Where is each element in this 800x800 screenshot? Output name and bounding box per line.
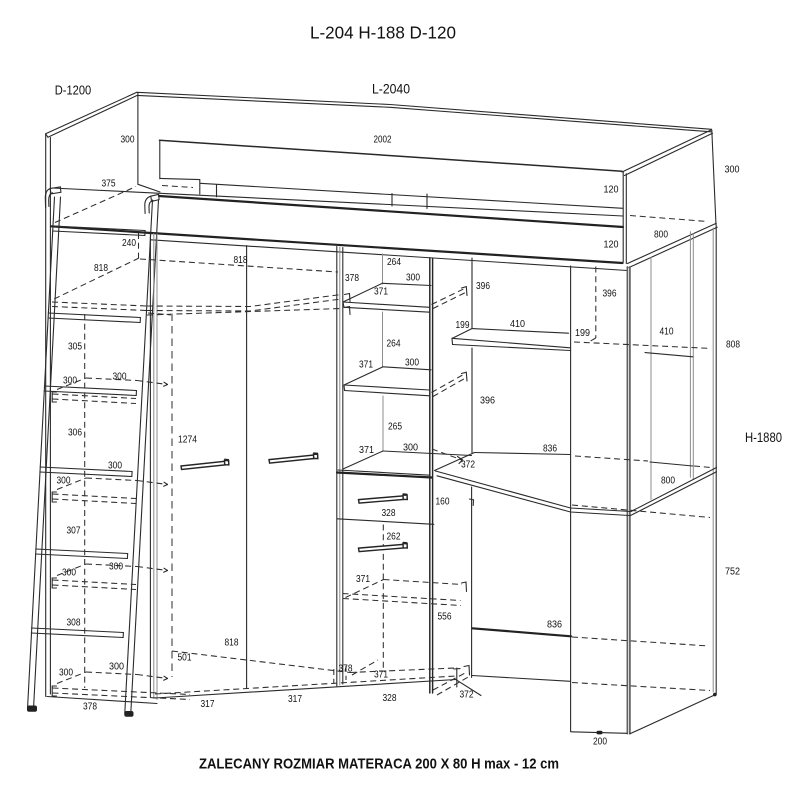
svg-text:396: 396 xyxy=(476,281,490,292)
svg-text:300: 300 xyxy=(403,443,418,454)
svg-text:556: 556 xyxy=(438,612,452,623)
svg-text:264: 264 xyxy=(387,339,401,350)
svg-text:300: 300 xyxy=(405,358,419,369)
svg-text:H-1880: H-1880 xyxy=(745,429,782,445)
svg-text:410: 410 xyxy=(660,327,674,338)
svg-text:752: 752 xyxy=(725,567,740,578)
svg-text:378: 378 xyxy=(339,664,353,675)
svg-text:371: 371 xyxy=(374,287,388,298)
svg-text:199: 199 xyxy=(456,320,470,331)
svg-text:300: 300 xyxy=(59,668,73,679)
svg-text:300: 300 xyxy=(406,273,420,284)
svg-text:300: 300 xyxy=(109,562,123,573)
svg-text:317: 317 xyxy=(201,699,215,710)
svg-text:818: 818 xyxy=(234,255,248,266)
svg-text:306: 306 xyxy=(68,428,82,439)
svg-text:501: 501 xyxy=(178,653,192,664)
svg-text:300: 300 xyxy=(109,662,124,673)
svg-text:D-1200: D-1200 xyxy=(55,84,92,98)
svg-text:371: 371 xyxy=(359,445,374,456)
svg-text:371: 371 xyxy=(374,670,388,681)
svg-text:305: 305 xyxy=(68,342,82,353)
svg-text:300: 300 xyxy=(725,165,740,176)
svg-text:818: 818 xyxy=(94,263,108,274)
svg-text:L-2040: L-2040 xyxy=(372,81,410,97)
svg-text:371: 371 xyxy=(356,574,370,585)
svg-text:160: 160 xyxy=(436,497,450,508)
svg-text:308: 308 xyxy=(67,618,81,629)
svg-text:300: 300 xyxy=(121,135,135,146)
svg-text:818: 818 xyxy=(225,638,239,649)
svg-text:836: 836 xyxy=(547,620,562,631)
svg-text:265: 265 xyxy=(388,422,402,433)
svg-text:800: 800 xyxy=(654,230,668,241)
svg-text:410: 410 xyxy=(510,319,525,330)
svg-text:372: 372 xyxy=(460,690,474,701)
svg-text:L-204 H-188 D-120: L-204 H-188 D-120 xyxy=(310,23,456,43)
svg-text:300: 300 xyxy=(108,461,122,472)
svg-text:328: 328 xyxy=(383,693,397,704)
svg-text:378: 378 xyxy=(83,702,97,713)
svg-text:200: 200 xyxy=(593,737,607,748)
svg-text:300: 300 xyxy=(62,568,76,579)
svg-text:317: 317 xyxy=(288,694,302,705)
svg-text:808: 808 xyxy=(726,340,740,351)
svg-text:120: 120 xyxy=(604,240,619,251)
svg-text:ZALECANY ROZMIAR MATERACA 200: ZALECANY ROZMIAR MATERACA 200 X 80 H max… xyxy=(199,757,559,773)
svg-text:800: 800 xyxy=(661,476,675,487)
svg-text:300: 300 xyxy=(113,372,127,383)
svg-text:372: 372 xyxy=(461,460,475,471)
svg-text:264: 264 xyxy=(387,257,401,268)
svg-text:300: 300 xyxy=(63,376,77,387)
svg-text:199: 199 xyxy=(575,328,590,339)
svg-text:836: 836 xyxy=(543,444,557,455)
svg-text:396: 396 xyxy=(603,289,617,300)
svg-text:328: 328 xyxy=(382,508,396,519)
svg-text:300: 300 xyxy=(57,476,71,487)
svg-text:378: 378 xyxy=(345,273,359,284)
svg-text:307: 307 xyxy=(67,526,81,537)
svg-text:396: 396 xyxy=(480,396,495,407)
svg-text:240: 240 xyxy=(122,238,136,249)
svg-text:2002: 2002 xyxy=(374,135,392,146)
svg-text:375: 375 xyxy=(102,179,116,190)
svg-text:120: 120 xyxy=(604,185,619,196)
svg-text:262: 262 xyxy=(387,532,401,543)
svg-text:371: 371 xyxy=(359,360,373,371)
svg-text:1274: 1274 xyxy=(178,435,197,446)
